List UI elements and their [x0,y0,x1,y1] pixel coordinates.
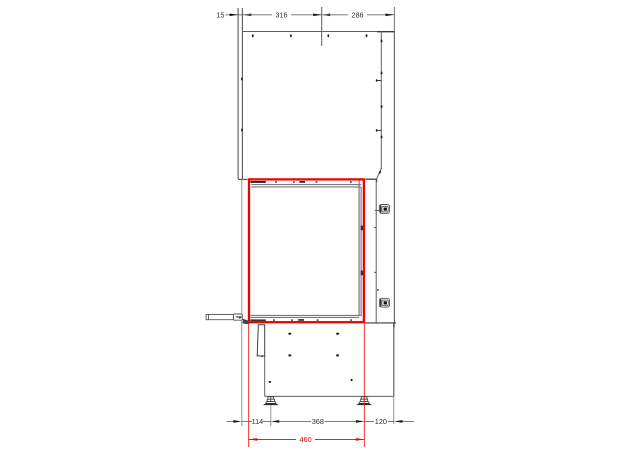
svg-text:114: 114 [252,417,264,426]
svg-text:120: 120 [375,417,387,426]
svg-text:368: 368 [312,417,324,426]
svg-text:15: 15 [216,10,224,19]
svg-text:286: 286 [351,10,363,19]
svg-text:316: 316 [275,10,287,19]
svg-text:460: 460 [300,435,312,444]
